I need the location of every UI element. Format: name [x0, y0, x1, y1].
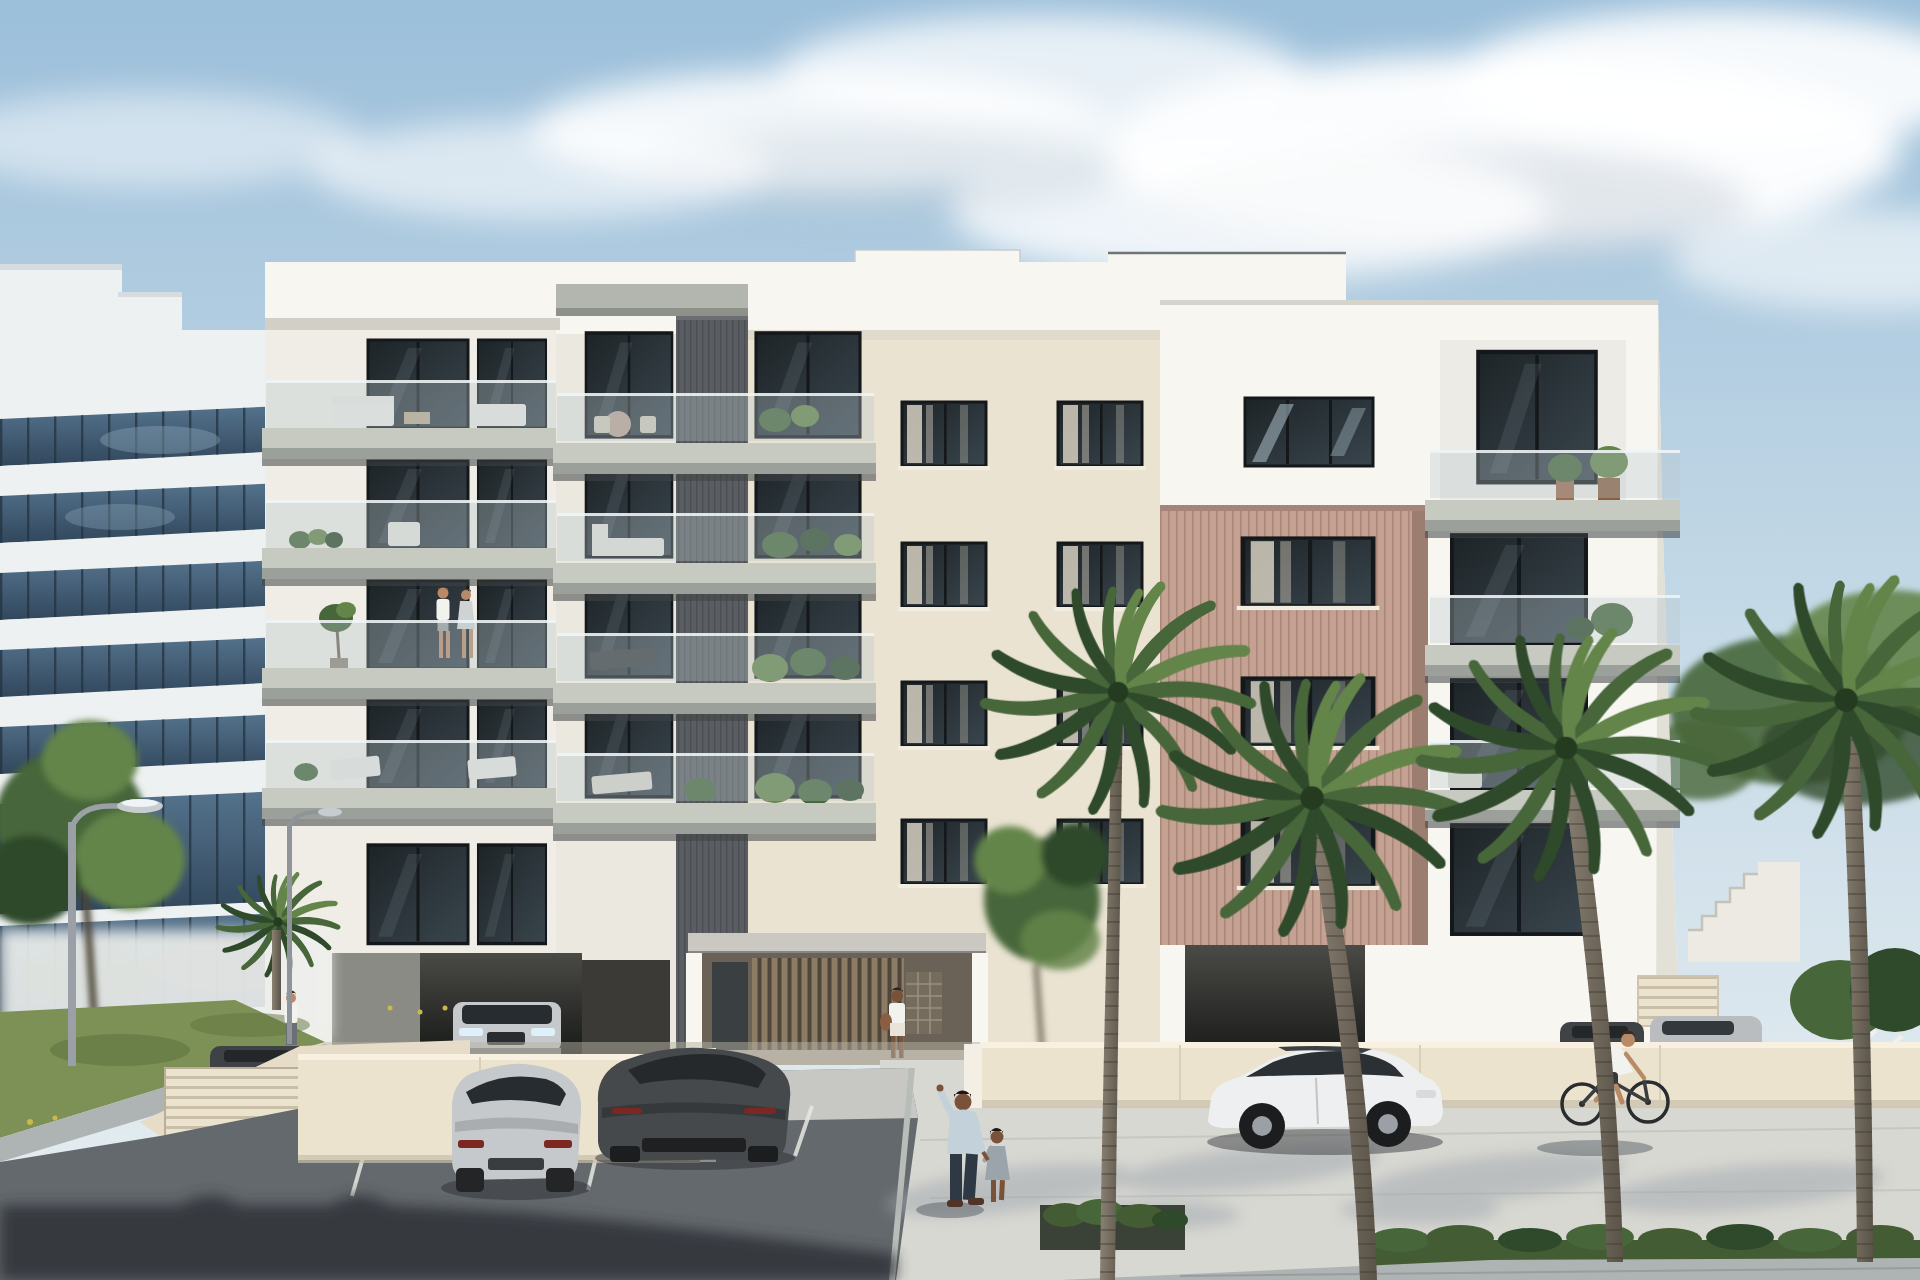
glass-railing — [557, 633, 874, 681]
upper-right-box — [1245, 398, 1373, 466]
ground-recess — [578, 960, 670, 1056]
glass-railing — [557, 753, 874, 801]
mailboxes — [906, 972, 942, 1034]
window — [1452, 825, 1586, 934]
glass-railing — [266, 620, 556, 668]
window — [1237, 538, 1380, 610]
balcony-slab — [262, 428, 560, 466]
window-three-pane — [1245, 398, 1373, 466]
glass-railing — [266, 380, 556, 428]
window — [898, 682, 990, 750]
render-stage: Architectural render: five-storey white … — [0, 0, 1920, 1280]
glass-railing — [266, 740, 556, 788]
glass-railing — [557, 513, 874, 561]
gray-fascia — [556, 284, 748, 312]
balcony-slab — [553, 443, 876, 481]
balcony-slab — [553, 803, 876, 841]
right-wall — [980, 1045, 1920, 1107]
architectural-render: Architectural render: five-storey white … — [0, 0, 1920, 1280]
window — [368, 845, 468, 944]
glass-railing — [1430, 450, 1680, 498]
entrance-canopy — [688, 933, 986, 953]
balcony-slab — [553, 563, 876, 601]
office-penthouse — [0, 268, 122, 338]
window — [898, 543, 990, 611]
glass-railing — [557, 393, 874, 441]
balcony-slab — [262, 788, 560, 826]
window — [898, 402, 990, 470]
window — [1054, 402, 1146, 470]
car-mercedes — [441, 1064, 591, 1200]
window — [478, 845, 546, 944]
balcony-slab — [1425, 500, 1680, 538]
balcony-slab — [553, 683, 876, 721]
glass-railing — [266, 500, 556, 548]
car-aston — [595, 1048, 795, 1170]
glass-railing — [1430, 595, 1680, 643]
balcony-slab — [262, 668, 560, 706]
apartment-building — [262, 250, 1800, 1065]
balcony-slab — [262, 548, 560, 586]
roof-plant-wall — [855, 250, 1020, 264]
